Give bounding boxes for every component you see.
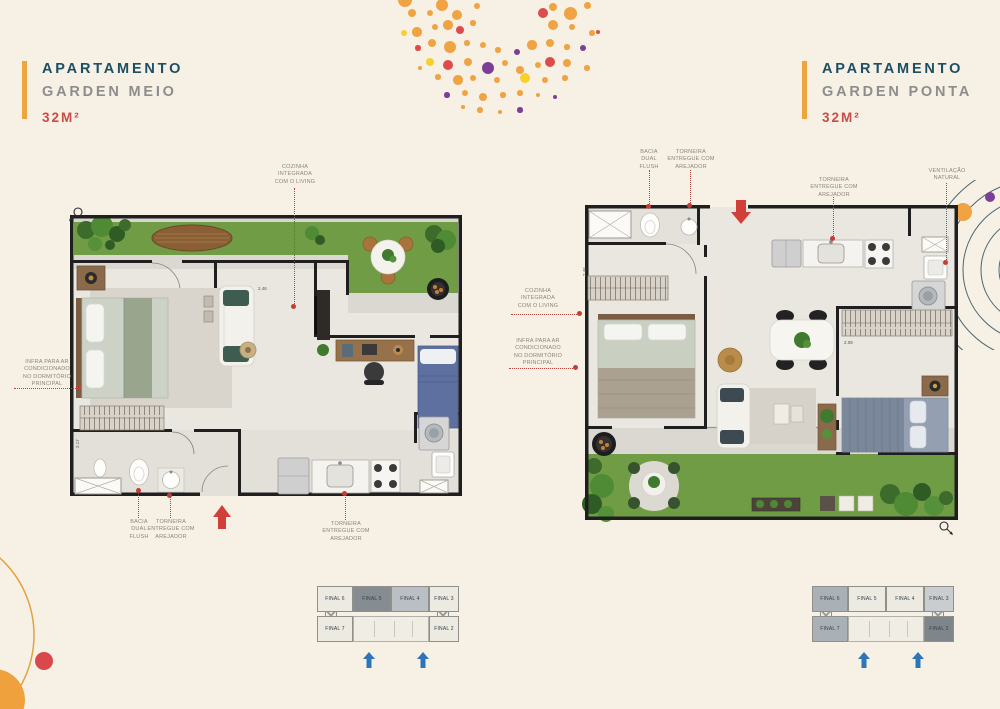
left-unit-title: APARTAMENTO xyxy=(42,58,183,81)
decor-dot xyxy=(564,7,577,20)
annotation-dot xyxy=(830,236,835,241)
annotation-infra-ar: INFRA PARA AR CONDICIONADO NO DORMITÓRIO… xyxy=(504,338,572,367)
compass-icon xyxy=(940,522,953,535)
decor-dot xyxy=(412,27,421,36)
leader-line xyxy=(946,183,947,260)
leader-line xyxy=(294,188,295,306)
keyplan-corridor xyxy=(353,616,429,642)
nightstand xyxy=(922,376,948,396)
decor-dot xyxy=(589,30,594,35)
decor-dot xyxy=(580,45,586,51)
keyplan-unit-final6-highlighted: FINAL 6 xyxy=(812,586,848,612)
sofa xyxy=(717,384,750,448)
right-unit-subtitle: GARDEN PONTA xyxy=(822,81,972,104)
keyplan-unit-final3: FINAL 3 xyxy=(429,586,459,612)
decor-dot xyxy=(456,26,465,35)
keyplan-garden-meio: FINAL 6 FINAL 5 FINAL 4 FINAL 3 FINAL 7 … xyxy=(313,580,463,672)
bedroom-1 xyxy=(598,314,695,418)
decor-dot xyxy=(535,62,542,69)
decor-dot xyxy=(536,93,540,97)
decor-dot xyxy=(464,58,472,66)
leader-line xyxy=(14,388,76,389)
wall-art xyxy=(204,311,213,322)
annotation-dot xyxy=(76,385,81,390)
left-unit-area: 32M² xyxy=(42,110,183,125)
left-unit-title-block: APARTAMENTO GARDEN MEIO 32M² xyxy=(22,58,183,125)
decor-dot xyxy=(464,40,469,45)
annotation-dot xyxy=(291,304,296,309)
right-unit-title-block: APARTAMENTO GARDEN PONTA 32M² xyxy=(802,58,972,125)
decor-dot xyxy=(596,30,600,34)
floor-frame xyxy=(791,406,803,422)
closet xyxy=(80,406,164,430)
bbq-grill xyxy=(427,278,449,300)
entrance-arrow-icon xyxy=(912,652,924,668)
decor-dot xyxy=(443,60,454,71)
decor-dot xyxy=(427,10,433,16)
toilet xyxy=(641,213,660,237)
decor-dot xyxy=(548,20,559,31)
decor-dot xyxy=(470,75,477,82)
bbq-grill xyxy=(592,432,616,456)
accent-bar xyxy=(802,61,807,119)
floor-plan-garden-ponta: 2.46 2.08 xyxy=(578,198,963,538)
keyplan-unit-final5-highlighted: FINAL 5 xyxy=(353,586,391,612)
wardrobe xyxy=(588,276,668,300)
annotation-dot xyxy=(687,203,692,208)
decor-dot xyxy=(444,92,449,97)
decorative-circles xyxy=(0,530,170,709)
keyplan-unit-final2: FINAL 2 xyxy=(429,616,459,642)
leader-line xyxy=(345,495,346,520)
decor-dot xyxy=(435,74,440,79)
decor-dot xyxy=(461,105,464,108)
keyplan-unit-final7-highlighted: FINAL 7 xyxy=(812,616,848,642)
dimension-label: 2.17 xyxy=(75,439,80,448)
entrance-arrow-icon xyxy=(363,652,375,668)
decor-dot xyxy=(495,47,500,52)
entrance-arrow-icon xyxy=(213,505,231,529)
decor-dot xyxy=(502,60,509,67)
washing-machine xyxy=(912,281,945,312)
laundry-sink xyxy=(432,452,454,477)
leader-line xyxy=(833,197,834,236)
dimension-label: 2.08 xyxy=(844,340,853,345)
bed-single-blue xyxy=(418,346,458,428)
brochure-page: { "colors": { "background": "#f7f0e4", "… xyxy=(0,0,1000,709)
annotation-cozinha-integrada: COZINHA INTEGRADA COM O LIVING xyxy=(256,164,334,186)
decor-dot xyxy=(477,107,482,112)
stove xyxy=(371,460,400,492)
decor-dot xyxy=(462,90,469,97)
keyplan-unit-final4-highlighted: FINAL 4 xyxy=(391,586,429,612)
toilet xyxy=(130,459,149,485)
decorative-dot-cluster xyxy=(378,0,622,130)
right-unit-area: 32M² xyxy=(822,110,972,125)
decor-dot xyxy=(584,65,589,70)
decor-dot xyxy=(985,192,995,202)
decor-dot xyxy=(517,107,522,112)
shower-box xyxy=(589,211,631,238)
outdoor-dining-table xyxy=(628,461,680,511)
keyplan-unit-final6: FINAL 6 xyxy=(317,586,353,612)
wardrobe-2 xyxy=(842,310,952,336)
decor-dot xyxy=(418,66,422,70)
bathroom-sink xyxy=(158,468,184,492)
decor-dot xyxy=(482,62,494,74)
decor-dot xyxy=(432,24,439,31)
keyplan-garden-ponta: FINAL 6 FINAL 5 FINAL 4 FINAL 3 FINAL 7 … xyxy=(808,580,958,672)
dimension-label: 2.46 xyxy=(258,286,267,291)
decor-dot xyxy=(563,59,571,67)
floor-plan-garden-meio: 2.46 2.17 xyxy=(62,200,467,530)
decor-dot xyxy=(517,90,522,95)
desk xyxy=(336,340,414,361)
annotation-dot xyxy=(943,260,948,265)
decor-dot xyxy=(0,669,25,709)
decor-dot xyxy=(564,44,569,49)
wood-deck xyxy=(152,225,232,251)
kitchen-sink-counter xyxy=(312,460,369,493)
tank-box xyxy=(420,480,448,493)
keyplan-unit-final3-highlighted: FINAL 3 xyxy=(924,586,954,612)
decor-dot xyxy=(470,20,475,25)
decor-dot xyxy=(553,95,557,99)
fridge xyxy=(278,458,309,494)
annotation-dot xyxy=(342,491,347,496)
annotation-torneira-banheiro: TORNEIRA ENTREGUE COM AREJADOR xyxy=(147,519,195,541)
decor-dot xyxy=(542,77,549,84)
decor-dot xyxy=(584,2,591,9)
bed-double-gray xyxy=(842,398,948,452)
decor-dot xyxy=(562,75,567,80)
leader-line xyxy=(511,314,581,315)
decor-dot xyxy=(480,42,487,49)
decor-dot xyxy=(500,92,505,97)
planter-box xyxy=(752,498,800,511)
decor-dot xyxy=(494,77,501,84)
decor-dot xyxy=(415,45,420,50)
left-unit-subtitle: GARDEN MEIO xyxy=(42,81,183,104)
decor-dot xyxy=(538,8,548,18)
decor-dot xyxy=(514,49,521,56)
decor-dot xyxy=(408,9,416,17)
decor-dot xyxy=(443,20,452,29)
accent-bar xyxy=(22,61,27,119)
washing-machine xyxy=(419,417,449,450)
decor-dot xyxy=(444,41,456,53)
kitchen xyxy=(772,240,893,268)
stepping-stones xyxy=(820,496,873,511)
tank-box xyxy=(922,237,948,252)
decor-dot xyxy=(453,75,462,84)
entrance-arrow-icon xyxy=(417,652,429,668)
leader-line xyxy=(509,368,577,369)
decor-dot xyxy=(428,39,436,47)
decor-dot xyxy=(527,40,536,49)
right-unit-title: APARTAMENTO xyxy=(822,58,972,81)
keyplan-unit-final2-highlighted: FINAL 2 xyxy=(924,616,954,642)
stove xyxy=(865,240,893,268)
decor-dot xyxy=(569,24,576,31)
floor-frame xyxy=(774,404,789,424)
kitchen-sink-counter xyxy=(803,240,863,267)
annotation-dot xyxy=(646,204,651,209)
decor-dot xyxy=(474,3,480,9)
decor-dot xyxy=(398,0,412,7)
keyplan-unit-final5: FINAL 5 xyxy=(848,586,886,612)
decor-dot xyxy=(452,10,462,20)
decor-dot xyxy=(549,3,557,11)
annotation-cozinha-integrada: COZINHA INTEGRADA COM O LIVING xyxy=(506,288,570,310)
annotation-infra-ar: INFRA PARA AR CONDICIONADO NO DORMITÓRIO… xyxy=(0,359,94,388)
annotation-dot xyxy=(577,311,582,316)
decor-dot xyxy=(426,58,434,66)
annotation-torneira-cozinha: TORNEIRA ENTREGUE COM AREJADOR xyxy=(806,177,862,199)
annotation-torneira-banheiro: TORNEIRA ENTREGUE COM AREJADOR xyxy=(663,149,719,171)
leader-line xyxy=(170,497,171,518)
annotation-dot xyxy=(136,488,141,493)
kitchen xyxy=(278,458,400,494)
keyplan-corridor xyxy=(848,616,924,642)
annotation-torneira-cozinha: TORNEIRA ENTREGUE COM AREJADOR xyxy=(317,521,375,543)
dimension-label: 2.46 xyxy=(582,267,587,276)
decor-dot xyxy=(545,57,556,68)
keyplan-unit-final7: FINAL 7 xyxy=(317,616,353,642)
fridge xyxy=(772,240,801,267)
pedestal xyxy=(94,459,106,477)
decor-dot xyxy=(35,652,53,670)
decor-dot xyxy=(479,93,487,101)
decor-dot xyxy=(401,30,408,37)
annotation-dot xyxy=(167,493,172,498)
leader-line xyxy=(138,492,139,518)
decor-dot xyxy=(546,39,554,47)
decor-dot xyxy=(498,110,502,114)
annotation-dot xyxy=(573,365,578,370)
plant-stand xyxy=(818,404,836,450)
annotation-ventilacao-natural: VENTILAÇÃO NATURAL xyxy=(921,168,973,183)
bed-double xyxy=(598,314,695,418)
leader-line xyxy=(649,170,650,204)
leader-line xyxy=(690,170,691,203)
desk-chair xyxy=(364,362,384,382)
entrance-arrow-icon xyxy=(858,652,870,668)
decor-dot xyxy=(436,0,448,11)
wall-art xyxy=(204,296,213,307)
keyplan-unit-final4: FINAL 4 xyxy=(886,586,924,612)
decor-dot xyxy=(520,73,531,84)
shower-box xyxy=(75,478,121,494)
